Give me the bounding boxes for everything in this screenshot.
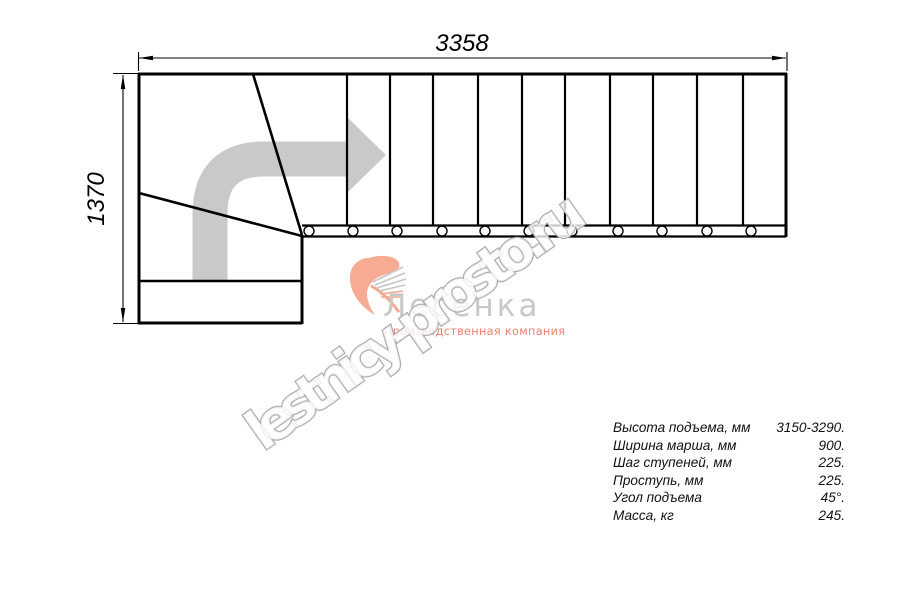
spec-row: Масса, кг 245. xyxy=(613,507,845,525)
stair-drawing-canvas: 3358 1370 Лесенка xyxy=(0,0,900,600)
dimension-top: 3358 xyxy=(139,30,788,71)
arrowhead-up-icon xyxy=(121,75,126,89)
baluster-icon xyxy=(746,226,756,236)
baluster-icon xyxy=(567,226,577,236)
spec-value: 45°. xyxy=(821,489,845,507)
spec-row: Проступь, мм 225. xyxy=(613,472,845,490)
arrowhead-left-icon xyxy=(139,56,153,61)
spec-label: Проступь, мм xyxy=(613,472,703,490)
spec-row: Высота подъема, мм 3150-3290. xyxy=(613,419,845,437)
handrail xyxy=(302,226,786,237)
spec-label: Шаг ступеней, мм xyxy=(613,454,732,472)
logo-title: Лесенка xyxy=(383,291,541,322)
spec-value: 900. xyxy=(819,437,845,455)
company-logo: Лесенка Производственная компания xyxy=(347,255,587,345)
spec-value: 225. xyxy=(819,454,845,472)
baluster-icon xyxy=(613,226,623,236)
arrowhead-down-icon xyxy=(121,308,126,322)
baluster-icon xyxy=(348,226,358,236)
spec-value: 3150-3290. xyxy=(776,419,845,437)
step-edges xyxy=(347,73,743,225)
spec-value: 225. xyxy=(819,472,845,490)
baluster-icon xyxy=(524,226,534,236)
spec-value: 245. xyxy=(819,507,845,525)
spec-label: Масса, кг xyxy=(613,507,674,525)
baluster-icon xyxy=(702,226,712,236)
spec-label: Ширина марша, мм xyxy=(613,437,737,455)
baluster-icon xyxy=(480,226,490,236)
spec-row: Ширина марша, мм 900. xyxy=(613,437,845,455)
baluster-posts xyxy=(304,226,756,236)
dimension-width-label: 1370 xyxy=(83,172,110,226)
baluster-icon xyxy=(304,226,314,236)
baluster-icon xyxy=(392,226,402,236)
arrowhead-right-icon xyxy=(772,56,786,61)
logo-tagline: Производственная компания xyxy=(384,326,565,338)
spec-row: Угол подъема 45°. xyxy=(613,489,845,507)
spec-row: Шаг ступеней, мм 225. xyxy=(613,454,845,472)
dimension-left: 1370 xyxy=(83,74,139,324)
spec-label: Высота подъема, мм xyxy=(613,419,750,437)
baluster-icon xyxy=(657,226,667,236)
dimension-length-label: 3358 xyxy=(435,30,489,57)
spec-label: Угол подъема xyxy=(613,489,702,507)
spec-table: Высота подъема, мм 3150-3290. Ширина мар… xyxy=(613,419,845,525)
baluster-icon xyxy=(437,226,447,236)
